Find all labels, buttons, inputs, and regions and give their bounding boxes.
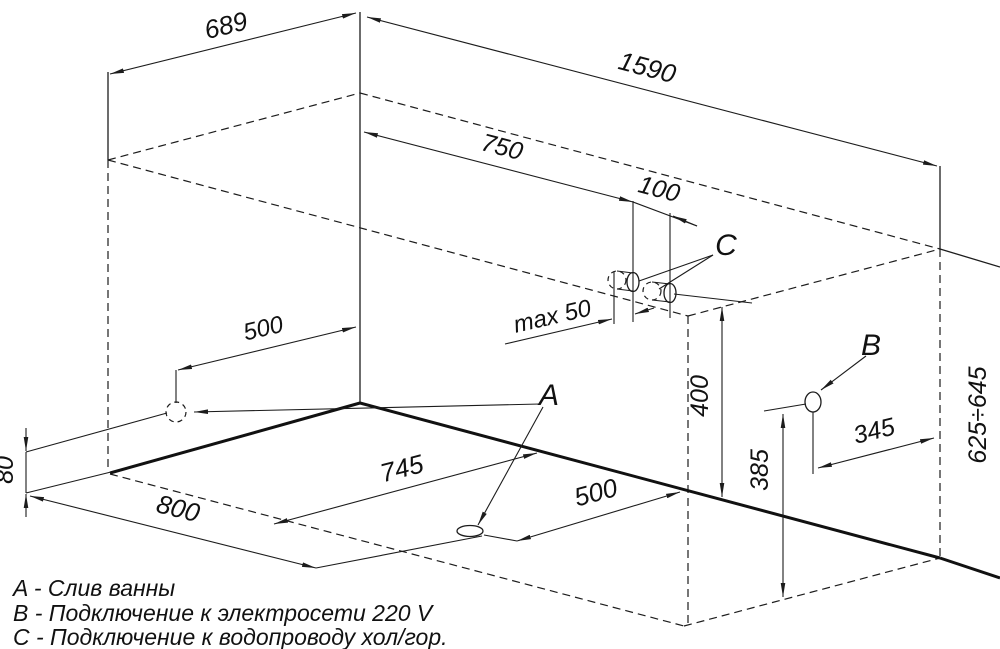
dim-max-50: max 50: [511, 295, 594, 339]
dim-500-wall: 500: [241, 311, 287, 347]
legend-line-b: B - Подключение к электросети 220 V: [13, 600, 435, 626]
dim-1590: 1590: [616, 45, 680, 89]
marker-b: B: [861, 329, 881, 362]
marker-c: C: [715, 229, 737, 262]
legend-line-c: C - Подключение к водопроводу хол/гор.: [13, 624, 448, 649]
dim-689: 689: [201, 5, 250, 45]
dim-745: 745: [377, 448, 427, 488]
dim-500-floor: 500: [571, 472, 621, 512]
dim-100: 100: [635, 170, 683, 208]
tub-box-hidden-edges: [108, 93, 940, 626]
dim-800: 800: [153, 488, 203, 528]
floor-drain-ellipse: [457, 526, 483, 537]
dim-80: 80: [0, 456, 19, 484]
technical-drawing-canvas: 689 1590 750 100 max 50 500 400 385 345 …: [0, 0, 1000, 649]
dimension-texts: 689 1590 750 100 max 50 500 400 385 345 …: [0, 5, 992, 528]
legend: A - Слив ванны B - Подключение к электро…: [11, 575, 448, 649]
dim-385: 385: [746, 449, 774, 491]
dim-345: 345: [850, 413, 897, 450]
wall-drain-hole: [166, 370, 186, 422]
water-pipes-c: [608, 271, 676, 303]
legend-line-a: A - Слив ванны: [11, 575, 175, 601]
dim-750: 750: [478, 128, 526, 166]
marker-a: A: [537, 379, 559, 412]
electrical-point-b: [805, 392, 821, 412]
bathtub-installation-diagram: 689 1590 750 100 max 50 500 400 385 345 …: [0, 0, 1000, 649]
dim-400: 400: [686, 375, 714, 417]
dim-625-645: 625÷645: [964, 366, 992, 463]
